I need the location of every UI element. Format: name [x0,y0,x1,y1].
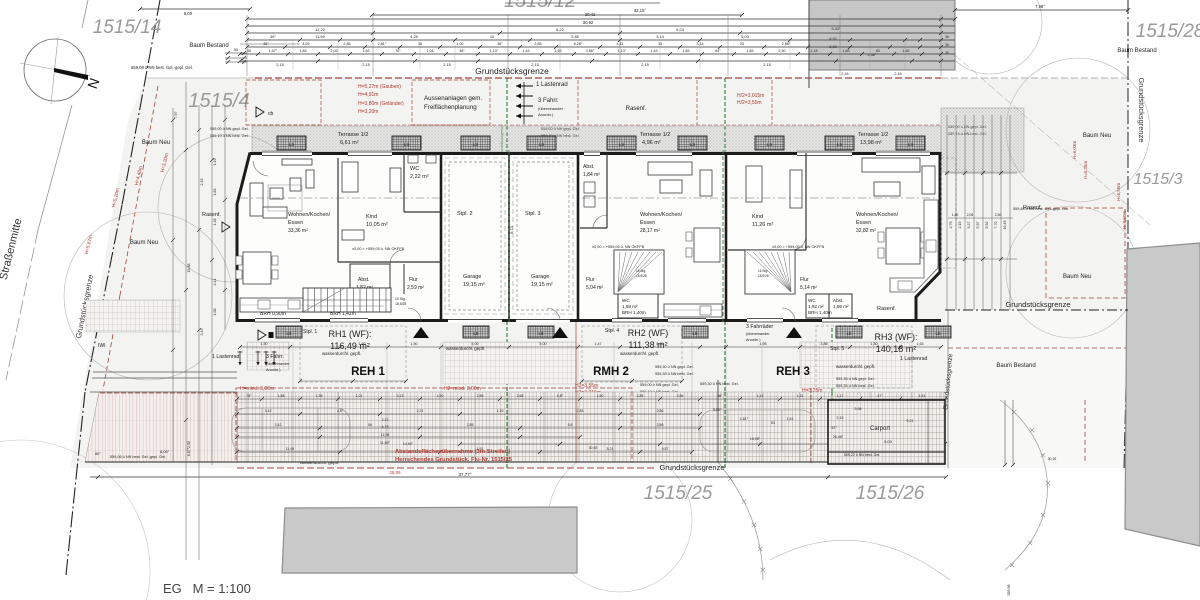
svg-text:2,16: 2,16 [894,72,901,76]
svg-text:36°: 36° [497,42,503,46]
svg-text:1,83: 1,83 [842,49,849,53]
svg-text:6,87°: 6,87° [187,447,191,456]
svg-text:Rasenf.: Rasenf. [626,106,647,112]
svg-text:Terrasse 1/2: Terrasse 1/2 [858,132,888,138]
svg-text:19,15 m²: 19,15 m² [463,282,485,288]
svg-text:Baum Neu: Baum Neu [130,240,158,246]
svg-text:H=8,50m: H=8,50m [1122,211,1127,230]
svg-text:5,8: 5,8 [568,423,573,427]
svg-text:50: 50 [247,49,251,53]
svg-text:5,98: 5,98 [855,407,862,411]
svg-text:BRH 1,40m: BRH 1,40m [622,310,646,315]
svg-text:5,21: 5,21 [907,419,914,423]
svg-text:10: 10 [490,34,495,39]
svg-text:15,98°: 15,98° [750,437,761,441]
svg-text:RH2 (WF): RH2 (WF) [628,328,669,338]
svg-text:3,43: 3,43 [200,329,204,336]
svg-text:2,15: 2,15 [958,222,962,229]
svg-text:2,15: 2,15 [641,62,649,67]
svg-text:1,01: 1,01 [356,394,363,398]
svg-text:36: 36 [945,43,949,47]
svg-text:3,42: 3,42 [265,409,272,413]
svg-text:Carport: Carport [870,426,890,432]
svg-text:1,13°: 1,13° [490,49,499,53]
svg-text:2,50: 2,50 [778,49,785,53]
svg-text:80°: 80° [95,452,101,456]
svg-text:LS: LS [404,142,410,147]
svg-text:1,92 m²: 1,92 m² [808,304,824,309]
svg-text:EG M = 1:100: EG M = 1:100 [163,581,251,596]
svg-text:cb: cb [268,111,274,117]
svg-text:Abst.: Abst. [833,298,843,303]
svg-text:3,13: 3,13 [397,394,404,398]
svg-text:LS: LS [473,331,478,336]
svg-text:H=mind. 3,00m: H=mind. 3,00m [240,386,274,392]
svg-text:1,63: 1,63 [362,49,369,53]
svg-text:559,06 ü NN best. Gel.-gepl. G: 559,06 ü NN best. Gel.-gepl. Gel. [110,455,166,459]
svg-text:1,68: 1,68 [278,394,285,398]
svg-text:559,35 ü NN gepl. Gel.: 559,35 ü NN gepl. Gel. [836,377,875,381]
svg-text:1,08: 1,08 [213,309,217,316]
svg-text:1,50: 1,50 [597,394,604,398]
svg-text:Stpl. 3: Stpl. 3 [525,211,541,217]
svg-text:47°: 47° [877,394,883,398]
svg-text:20: 20 [740,42,744,46]
svg-text:H=3,20m: H=3,20m [358,109,378,115]
svg-text:wasserdurchl. gepfl.: wasserdurchl. gepfl. [620,351,659,356]
svg-text:Aussenanlagen gem.: Aussenanlagen gem. [424,95,482,102]
svg-text:2,50: 2,50 [187,441,191,448]
svg-text:1,18: 1,18 [810,49,817,53]
svg-text:1,38: 1,38 [316,394,323,398]
svg-text:2,15: 2,15 [443,62,451,67]
svg-text:1,43: 1,43 [650,49,657,53]
svg-text:1,83: 1,83 [682,49,689,53]
svg-text:1,47: 1,47 [594,342,601,346]
svg-text:2,15: 2,15 [362,62,370,67]
svg-text:2,41: 2,41 [213,279,217,286]
svg-text:1,51: 1,51 [787,417,794,421]
svg-text:Kind: Kind [366,214,377,220]
svg-text:H/2=3,015m: H/2=3,015m [737,93,764,99]
svg-text:7,70: 7,70 [994,222,998,229]
svg-text:1,50: 1,50 [437,394,444,398]
svg-text:3 Fahrr.: 3 Fahrr. [266,354,284,360]
svg-text:92°: 92° [831,426,837,430]
svg-text:56: 56 [368,423,372,427]
svg-text:2,85: 2,85 [571,34,579,39]
svg-text:H=5,87m: H=5,87m [84,235,95,255]
svg-text:IWI: IWI [98,343,106,349]
svg-text:2,79: 2,79 [949,222,953,229]
svg-text:16 Stg.: 16 Stg. [758,269,768,273]
svg-text:1,43: 1,43 [522,49,529,53]
svg-text:H2=mind. 3,00m: H2=mind. 3,00m [444,386,481,392]
svg-text:3,86: 3,86 [820,342,827,346]
svg-text:Rasenf.: Rasenf. [1023,205,1042,211]
svg-text:1,95: 1,95 [759,342,766,346]
svg-text:5,37: 5,37 [967,222,971,229]
svg-text:4,96 m²: 4,96 m² [642,140,661,146]
svg-text:1,40: 1,40 [952,213,959,217]
svg-text:1,50: 1,50 [870,342,877,346]
svg-text:559,30 ü NN best. Gel.: 559,30 ü NN best. Gel. [700,382,739,386]
svg-text:(übereinander: (übereinander [266,362,290,366]
svg-text:1515/25: 1515/25 [644,483,713,504]
svg-text:RMH 2: RMH 2 [593,366,629,378]
svg-text:LS: LS [690,142,696,147]
svg-text:32,82 m²: 32,82 m² [856,228,876,234]
svg-text:559,30 ü NN gepl. Gel.: 559,30 ü NN gepl. Gel. [655,365,694,369]
svg-text:28,17 m²: 28,17 m² [640,228,660,234]
svg-text:2,81°: 2,81° [378,42,387,46]
svg-text:1,50: 1,50 [358,342,365,346]
svg-text:2,59 m²: 2,59 m² [407,285,424,291]
svg-text:Terrasse 1/2: Terrasse 1/2 [338,132,368,138]
svg-text:6,61 m²: 6,61 m² [340,140,359,146]
svg-text:(übereinander: (übereinander [746,332,770,336]
svg-text:7,98°: 7,98° [1035,4,1045,9]
svg-text:LS: LS [286,331,291,336]
svg-text:2,15: 2,15 [837,416,844,420]
svg-text:2,42: 2,42 [275,423,282,427]
svg-text:53: 53 [771,421,775,425]
svg-text:Freiflächenplanung: Freiflächenplanung [424,104,477,111]
svg-text:Anordn.): Anordn.) [266,368,281,372]
svg-text:Terrasse 1/2: Terrasse 1/2 [640,132,670,138]
svg-text:Stpl. 1: Stpl. 1 [303,329,317,335]
svg-text:5,04 m²: 5,04 m² [586,285,603,291]
svg-text:37,77°: 37,77° [458,472,471,477]
svg-text:Grundstücksgrenze: Grundstücksgrenze [1137,77,1146,142]
svg-text:±0,00 = +559,05 ü. NN OKFFB: ±0,00 = +559,05 ü. NN OKFFB [772,245,825,249]
svg-text:LS: LS [619,142,625,147]
svg-text:H=5,27m (Gauben): H=5,27m (Gauben) [358,84,401,90]
svg-text:Flur: Flur [800,277,809,283]
svg-text:5,14 m²: 5,14 m² [800,285,817,291]
svg-text:Straßenmitte: Straßenmitte [0,217,25,281]
svg-text:2,16: 2,16 [841,72,848,76]
svg-text:5,00: 5,00 [471,342,478,346]
svg-text:1 Lastenrad: 1 Lastenrad [536,82,568,88]
svg-text:Wohnen/Kochen/: Wohnen/Kochen/ [640,212,683,218]
svg-text:11,89°: 11,89° [380,441,390,445]
svg-text:1,01: 1,01 [426,49,433,53]
svg-text:Grundstücksgrenze: Grundstücksgrenze [659,463,724,472]
svg-text:2,85: 2,85 [477,394,484,398]
svg-text:559,35 ü NN best. Gel.: 559,35 ü NN best. Gel. [655,372,694,376]
svg-text:5,00: 5,00 [184,11,193,16]
svg-text:2,30: 2,30 [995,213,1002,217]
svg-text:11,59: 11,59 [315,34,324,39]
svg-text:H=4,91m: H=4,91m [358,92,378,98]
svg-text:12,22: 12,22 [315,27,326,32]
svg-text:2,85: 2,85 [637,394,644,398]
svg-text:2,68: 2,68 [517,394,524,398]
svg-text:11,98: 11,98 [381,433,390,437]
svg-text:1 Lastenrad: 1 Lastenrad [212,354,240,360]
svg-text:3,56°: 3,56° [586,49,595,53]
svg-text:4,78: 4,78 [382,425,389,429]
svg-text:50: 50 [234,48,238,52]
svg-text:6,73: 6,73 [510,226,514,233]
svg-text:18,5/28: 18,5/28 [636,274,647,278]
svg-text:9,24: 9,24 [676,27,685,32]
svg-text:1,14: 1,14 [757,394,764,398]
svg-text:76°: 76° [395,49,401,53]
svg-text:1,81°: 1,81° [740,417,749,421]
svg-text:1515/28: 1515/28 [1136,21,1200,42]
svg-text:7,57: 7,57 [174,112,178,119]
svg-text:2,15: 2,15 [763,62,771,67]
svg-text:Kind: Kind [752,214,763,220]
svg-text:42,15°: 42,15° [634,8,646,13]
svg-text:1,83: 1,83 [746,49,753,53]
svg-text:LS: LS [539,142,545,147]
svg-text:1,62: 1,62 [902,49,909,53]
svg-text:30,42: 30,42 [585,12,596,17]
svg-text:1,02: 1,02 [456,42,463,46]
svg-text:Rasenf.: Rasenf. [877,306,896,312]
svg-text:H/2=3,55m: H/2=3,55m [737,100,762,106]
svg-text:5,38°: 5,38° [868,53,877,57]
svg-text:(übereinander: (übereinander [538,106,564,111]
svg-text:64°: 64° [715,49,721,53]
svg-text:BRH 1,40m: BRH 1,40m [808,310,832,315]
svg-text:LS: LS [538,331,543,336]
svg-text:2,15: 2,15 [276,62,284,67]
svg-text:2,85: 2,85 [467,423,474,427]
svg-text:16,49: 16,49 [1003,221,1007,230]
svg-text:3 Fahrr.: 3 Fahrr. [538,98,559,104]
svg-text:4,25: 4,25 [302,42,309,46]
svg-text:1,50: 1,50 [410,342,417,346]
svg-text:78°: 78° [246,394,252,398]
svg-text:2,21: 2,21 [417,409,424,413]
svg-text:1,13°: 1,13° [618,49,627,53]
svg-text:5,8°: 5,8° [557,394,564,398]
svg-text:26,48°: 26,48° [833,435,844,439]
svg-text:1,68 m²: 1,68 m² [622,304,638,309]
svg-text:140,18 m²: 140,18 m² [876,344,917,354]
svg-text:Wohnen/Kochen/: Wohnen/Kochen/ [856,212,899,218]
svg-text:Baum Bestand: Baum Bestand [189,43,228,49]
svg-text:3,24°: 3,24° [713,408,722,412]
svg-text:5,92: 5,92 [985,222,989,229]
svg-text:LS: LS [289,142,295,147]
svg-text:11,26 m²: 11,26 m² [752,222,773,228]
svg-text:Flur: Flur [409,277,418,283]
svg-text:2,88°: 2,88° [782,42,791,46]
svg-text:25,06: 25,06 [389,470,401,475]
svg-text:LS: LS [846,331,851,336]
svg-text:5,00: 5,00 [539,342,546,346]
svg-text:1,07°: 1,07° [269,49,278,53]
svg-text:LS: LS [935,331,940,336]
svg-text:14,90°: 14,90° [403,442,414,446]
svg-text:2,86: 2,86 [677,394,684,398]
svg-text:Rasenf.: Rasenf. [202,212,221,218]
svg-text:3,14: 3,14 [656,34,664,39]
svg-text:2,22 m²: 2,22 m² [410,174,429,180]
svg-text:30,92: 30,92 [589,446,598,450]
svg-text:Baum Bestand: Baum Bestand [996,363,1035,369]
svg-text:5,00: 5,00 [656,342,663,346]
svg-text:H=6,35m: H=6,35m [1083,161,1088,180]
svg-text:LS: LS [837,142,843,147]
svg-text:±0,00 = +559,05 ü. NN OKFFB: ±0,00 = +559,05 ü. NN OKFFB [592,245,645,249]
svg-text:559,98: 559,98 [1007,585,1011,596]
svg-text:9,57: 9,57 [662,447,669,451]
svg-text:RH1 (WF):: RH1 (WF): [329,329,372,339]
svg-text:10,05 m²: 10,05 m² [366,222,388,228]
svg-text:6,92: 6,92 [829,37,836,41]
svg-text:Baum Neu: Baum Neu [1063,274,1091,280]
svg-text:1515/14: 1515/14 [93,17,162,38]
svg-text:WC: WC [410,166,419,172]
svg-text:6,22: 6,22 [556,27,565,32]
svg-text:3 Fahrräder: 3 Fahrräder [746,324,773,330]
svg-text:15,88: 15,88 [187,264,191,273]
svg-text:1515/12: 1515/12 [504,0,576,12]
svg-text:33,36 m²: 33,36 m² [288,228,308,234]
svg-text:36°: 36° [270,34,276,39]
svg-text:RH3 (WF):: RH3 (WF): [875,332,918,342]
svg-text:WC: WC [808,298,816,303]
svg-text:2,45: 2,45 [200,179,204,186]
svg-text:1,50: 1,50 [260,342,267,346]
svg-text:N: N [84,76,102,91]
svg-text:Baum Bestand: Baum Bestand [1117,48,1156,54]
svg-text:2,85: 2,85 [534,42,541,46]
svg-text:36°: 36° [459,49,465,53]
svg-text:559,00 ü NN gepl. Gel.: 559,00 ü NN gepl. Gel. [210,127,249,131]
svg-text:36: 36 [945,51,949,55]
svg-text:REH 1: REH 1 [351,366,385,378]
svg-text:1515/4: 1515/4 [188,90,249,112]
svg-text:H=6,50m: H=6,50m [1116,183,1121,202]
svg-text:1,19: 1,19 [213,159,217,166]
svg-text:2,21: 2,21 [382,418,389,422]
svg-text:82: 82 [876,49,880,53]
svg-text:10 Stg.: 10 Stg. [395,297,406,301]
svg-text:1,39: 1,39 [497,409,504,413]
svg-text:559,19 ü NN best. Gel.: 559,19 ü NN best. Gel. [210,134,249,138]
svg-text:Garage: Garage [463,274,481,280]
svg-text:1,84 m²: 1,84 m² [583,172,600,178]
svg-text:19,15 m²: 19,15 m² [531,282,553,288]
svg-text:5,97: 5,97 [976,222,980,229]
svg-text:18,5/28: 18,5/28 [758,274,769,278]
svg-text:Wohnen/Kochen/: Wohnen/Kochen/ [288,212,331,218]
svg-text:4,25: 4,25 [410,34,418,39]
svg-text:5,03: 5,03 [741,34,749,39]
svg-text:Baum Neu: Baum Neu [1083,133,1111,139]
svg-text:Abst.: Abst. [358,277,369,283]
svg-text:6,05°: 6,05° [160,449,170,454]
svg-text:wasserdurchl. gepfl.: wasserdurchl. gepfl. [322,351,361,356]
svg-text:Essen: Essen [288,220,303,226]
svg-text:5,00: 5,00 [884,439,893,444]
svg-text:1 Lastenrad: 1 Lastenrad [900,356,928,362]
svg-text:Essen: Essen [856,220,871,226]
svg-text:Anordn.): Anordn.) [538,112,554,117]
svg-text:30,92: 30,92 [1048,457,1057,461]
svg-text:Flur: Flur [586,277,595,283]
svg-text:Grundstücksgrenze: Grundstücksgrenze [1005,300,1070,309]
svg-text:30,92: 30,92 [583,20,594,25]
svg-text:1515/26: 1515/26 [856,483,925,504]
svg-text:LS: LS [767,142,773,147]
svg-text:REH 3: REH 3 [776,366,810,378]
svg-text:2,05: 2,05 [967,213,974,217]
svg-text:±0,00 = +559,05 ü. NN OKFFB: ±0,00 = +559,05 ü. NN OKFFB [352,247,405,251]
svg-text:H=6,03m: H=6,03m [1072,141,1077,160]
svg-text:18,5/28: 18,5/28 [395,302,406,306]
svg-text:8,28°: 8,28° [574,42,583,46]
svg-text:Garage: Garage [531,274,549,280]
svg-text:LS: LS [692,331,697,336]
svg-text:2,85: 2,85 [343,42,350,46]
svg-text:2,02: 2,02 [330,49,337,53]
svg-text:Abstandsflächenübernahme (3m-S: Abstandsflächenübernahme (3m-Streifen) [395,449,510,455]
svg-text:2,86: 2,86 [657,423,664,427]
svg-text:1,63: 1,63 [554,49,561,53]
svg-text:1,98 m²: 1,98 m² [833,304,849,309]
svg-text:1,51: 1,51 [919,394,926,398]
svg-text:559,00 ü NN gepl. Gel.: 559,00 ü NN gepl. Gel. [640,383,679,387]
svg-text:LS: LS [908,142,914,147]
svg-text:Stpl. 4: Stpl. 4 [605,328,619,334]
svg-text:1,17: 1,17 [837,394,844,398]
svg-text:WC: WC [622,298,630,303]
svg-text:16 Stg.: 16 Stg. [636,269,646,273]
svg-text:LS: LS [473,142,479,147]
svg-text:559,35 ü NN best. Gel.: 559,35 ü NN best. Gel. [836,384,875,388]
svg-text:559,22 ü NN best. Gel.: 559,22 ü NN best. Gel. [844,453,881,457]
svg-text:1,83: 1,83 [299,49,306,53]
svg-text:wasserdurchl. gepfl.: wasserdurchl. gepfl. [836,364,875,369]
svg-text:Essen: Essen [640,220,655,226]
svg-text:36: 36 [945,35,949,39]
svg-text:Stpl. 2: Stpl. 2 [457,211,473,217]
svg-text:H=3,80m (Geländer): H=3,80m (Geländer) [358,101,404,107]
svg-text:559,08 ü NN best. Gel.-gepl. G: 559,08 ü NN best. Gel.-gepl. Gel. [131,65,193,70]
svg-text:2,85: 2,85 [577,409,584,413]
svg-text:5,43°: 5,43° [832,27,841,31]
svg-text:Baum Neu: Baum Neu [142,140,170,146]
svg-text:1,28: 1,28 [213,219,217,226]
svg-text:2,86: 2,86 [657,409,664,413]
svg-text:1,83: 1,83 [213,189,217,196]
svg-text:Abst.: Abst. [583,164,594,170]
svg-text:Grundstücksgrenze: Grundstücksgrenze [475,66,549,76]
svg-text:1,63: 1,63 [916,342,923,346]
svg-text:5,21: 5,21 [607,447,614,451]
svg-text:13,98 m²: 13,98 m² [860,140,882,146]
svg-text:1515/3: 1515/3 [1134,171,1183,188]
